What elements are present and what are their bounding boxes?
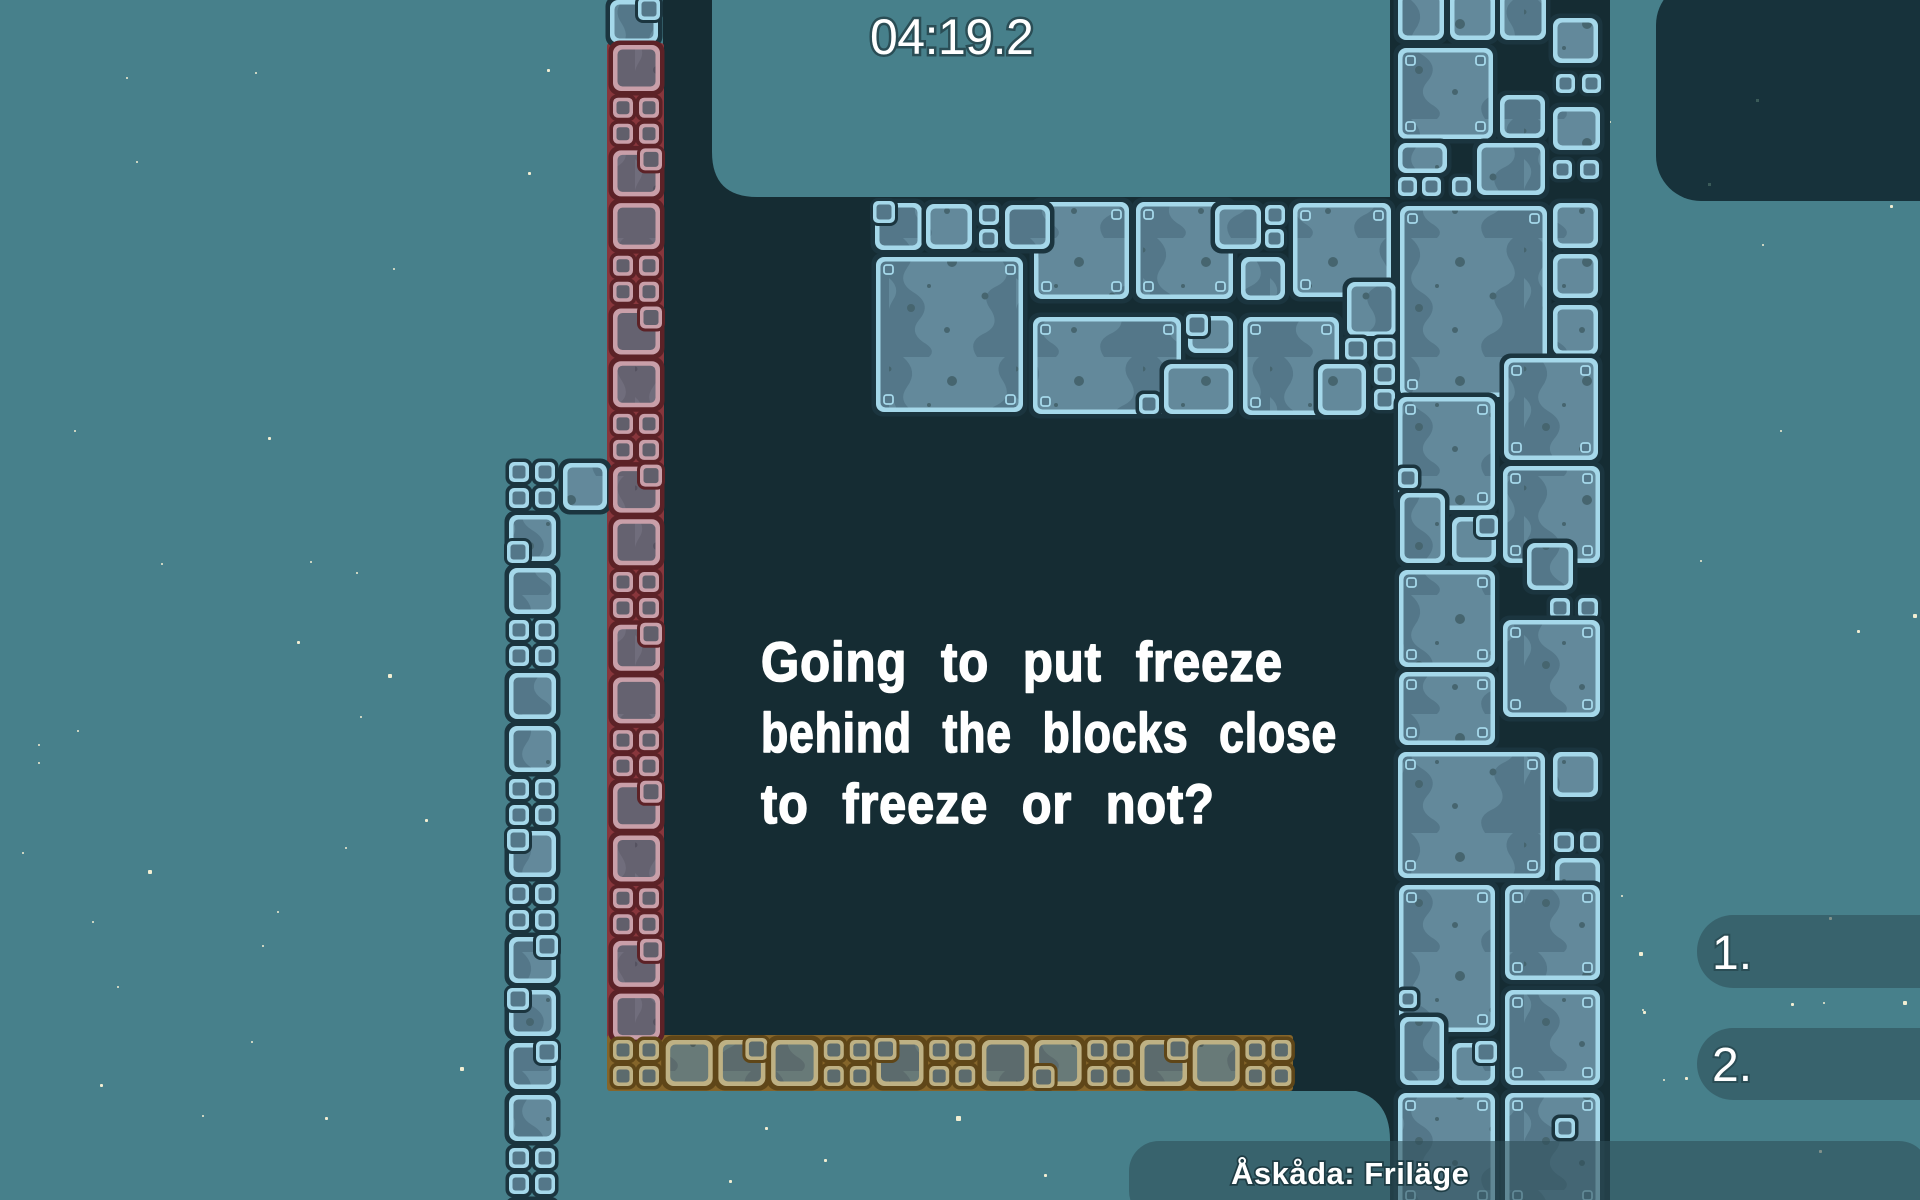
svg-text:Åskåda: Friläge: Åskåda: Friläge <box>1231 1156 1469 1191</box>
svg-text:behind the blocks close: behind the blocks close <box>761 701 1337 764</box>
svg-text:2.: 2. <box>1712 1039 1752 1092</box>
svg-text:1.: 1. <box>1712 927 1752 980</box>
svg-text:to freeze or not?: to freeze or not? <box>761 773 1215 836</box>
svg-text:04:19.2: 04:19.2 <box>870 9 1033 65</box>
svg-text:Going to put freeze: Going to put freeze <box>761 631 1283 694</box>
